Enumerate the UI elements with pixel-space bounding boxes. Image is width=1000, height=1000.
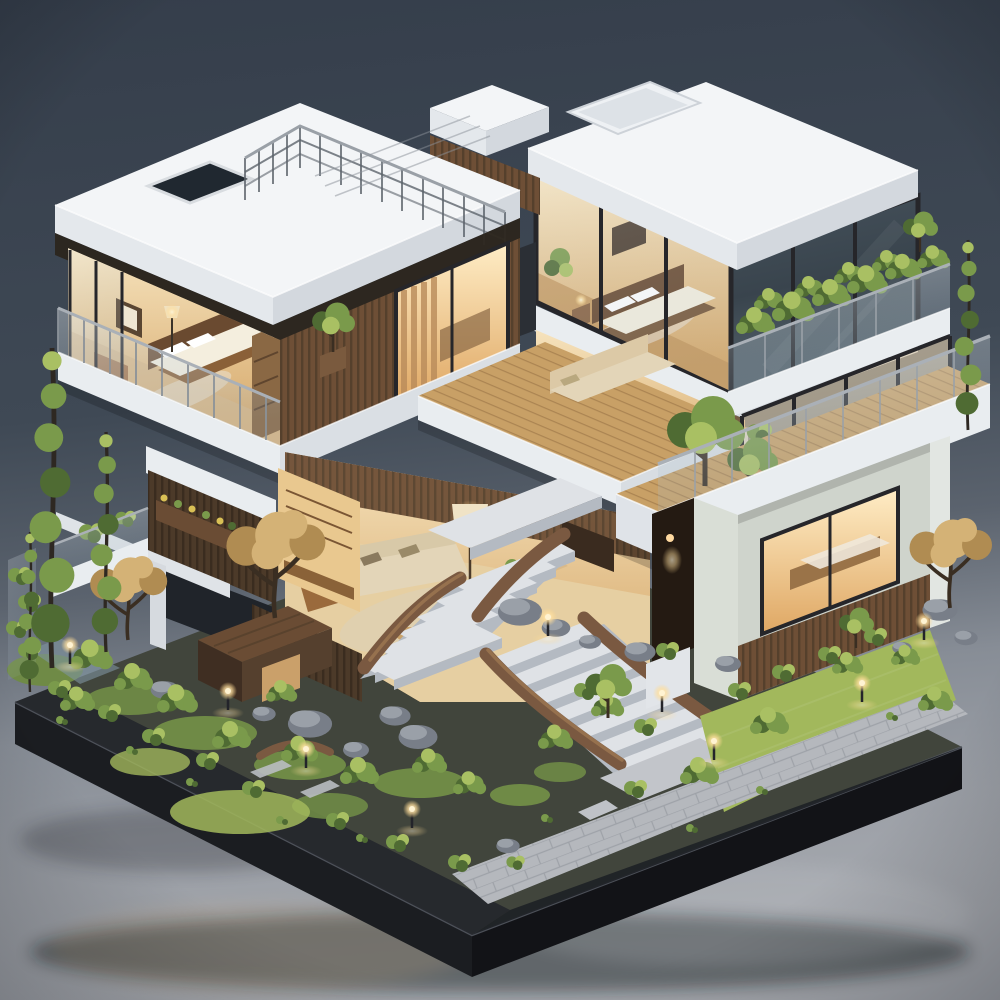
render-canvas: Miniature 3D render of a modern multi-le…	[0, 0, 1000, 1000]
house-model-render: Miniature 3D render of a modern multi-le…	[0, 0, 1000, 1000]
vignette	[0, 0, 1000, 1000]
